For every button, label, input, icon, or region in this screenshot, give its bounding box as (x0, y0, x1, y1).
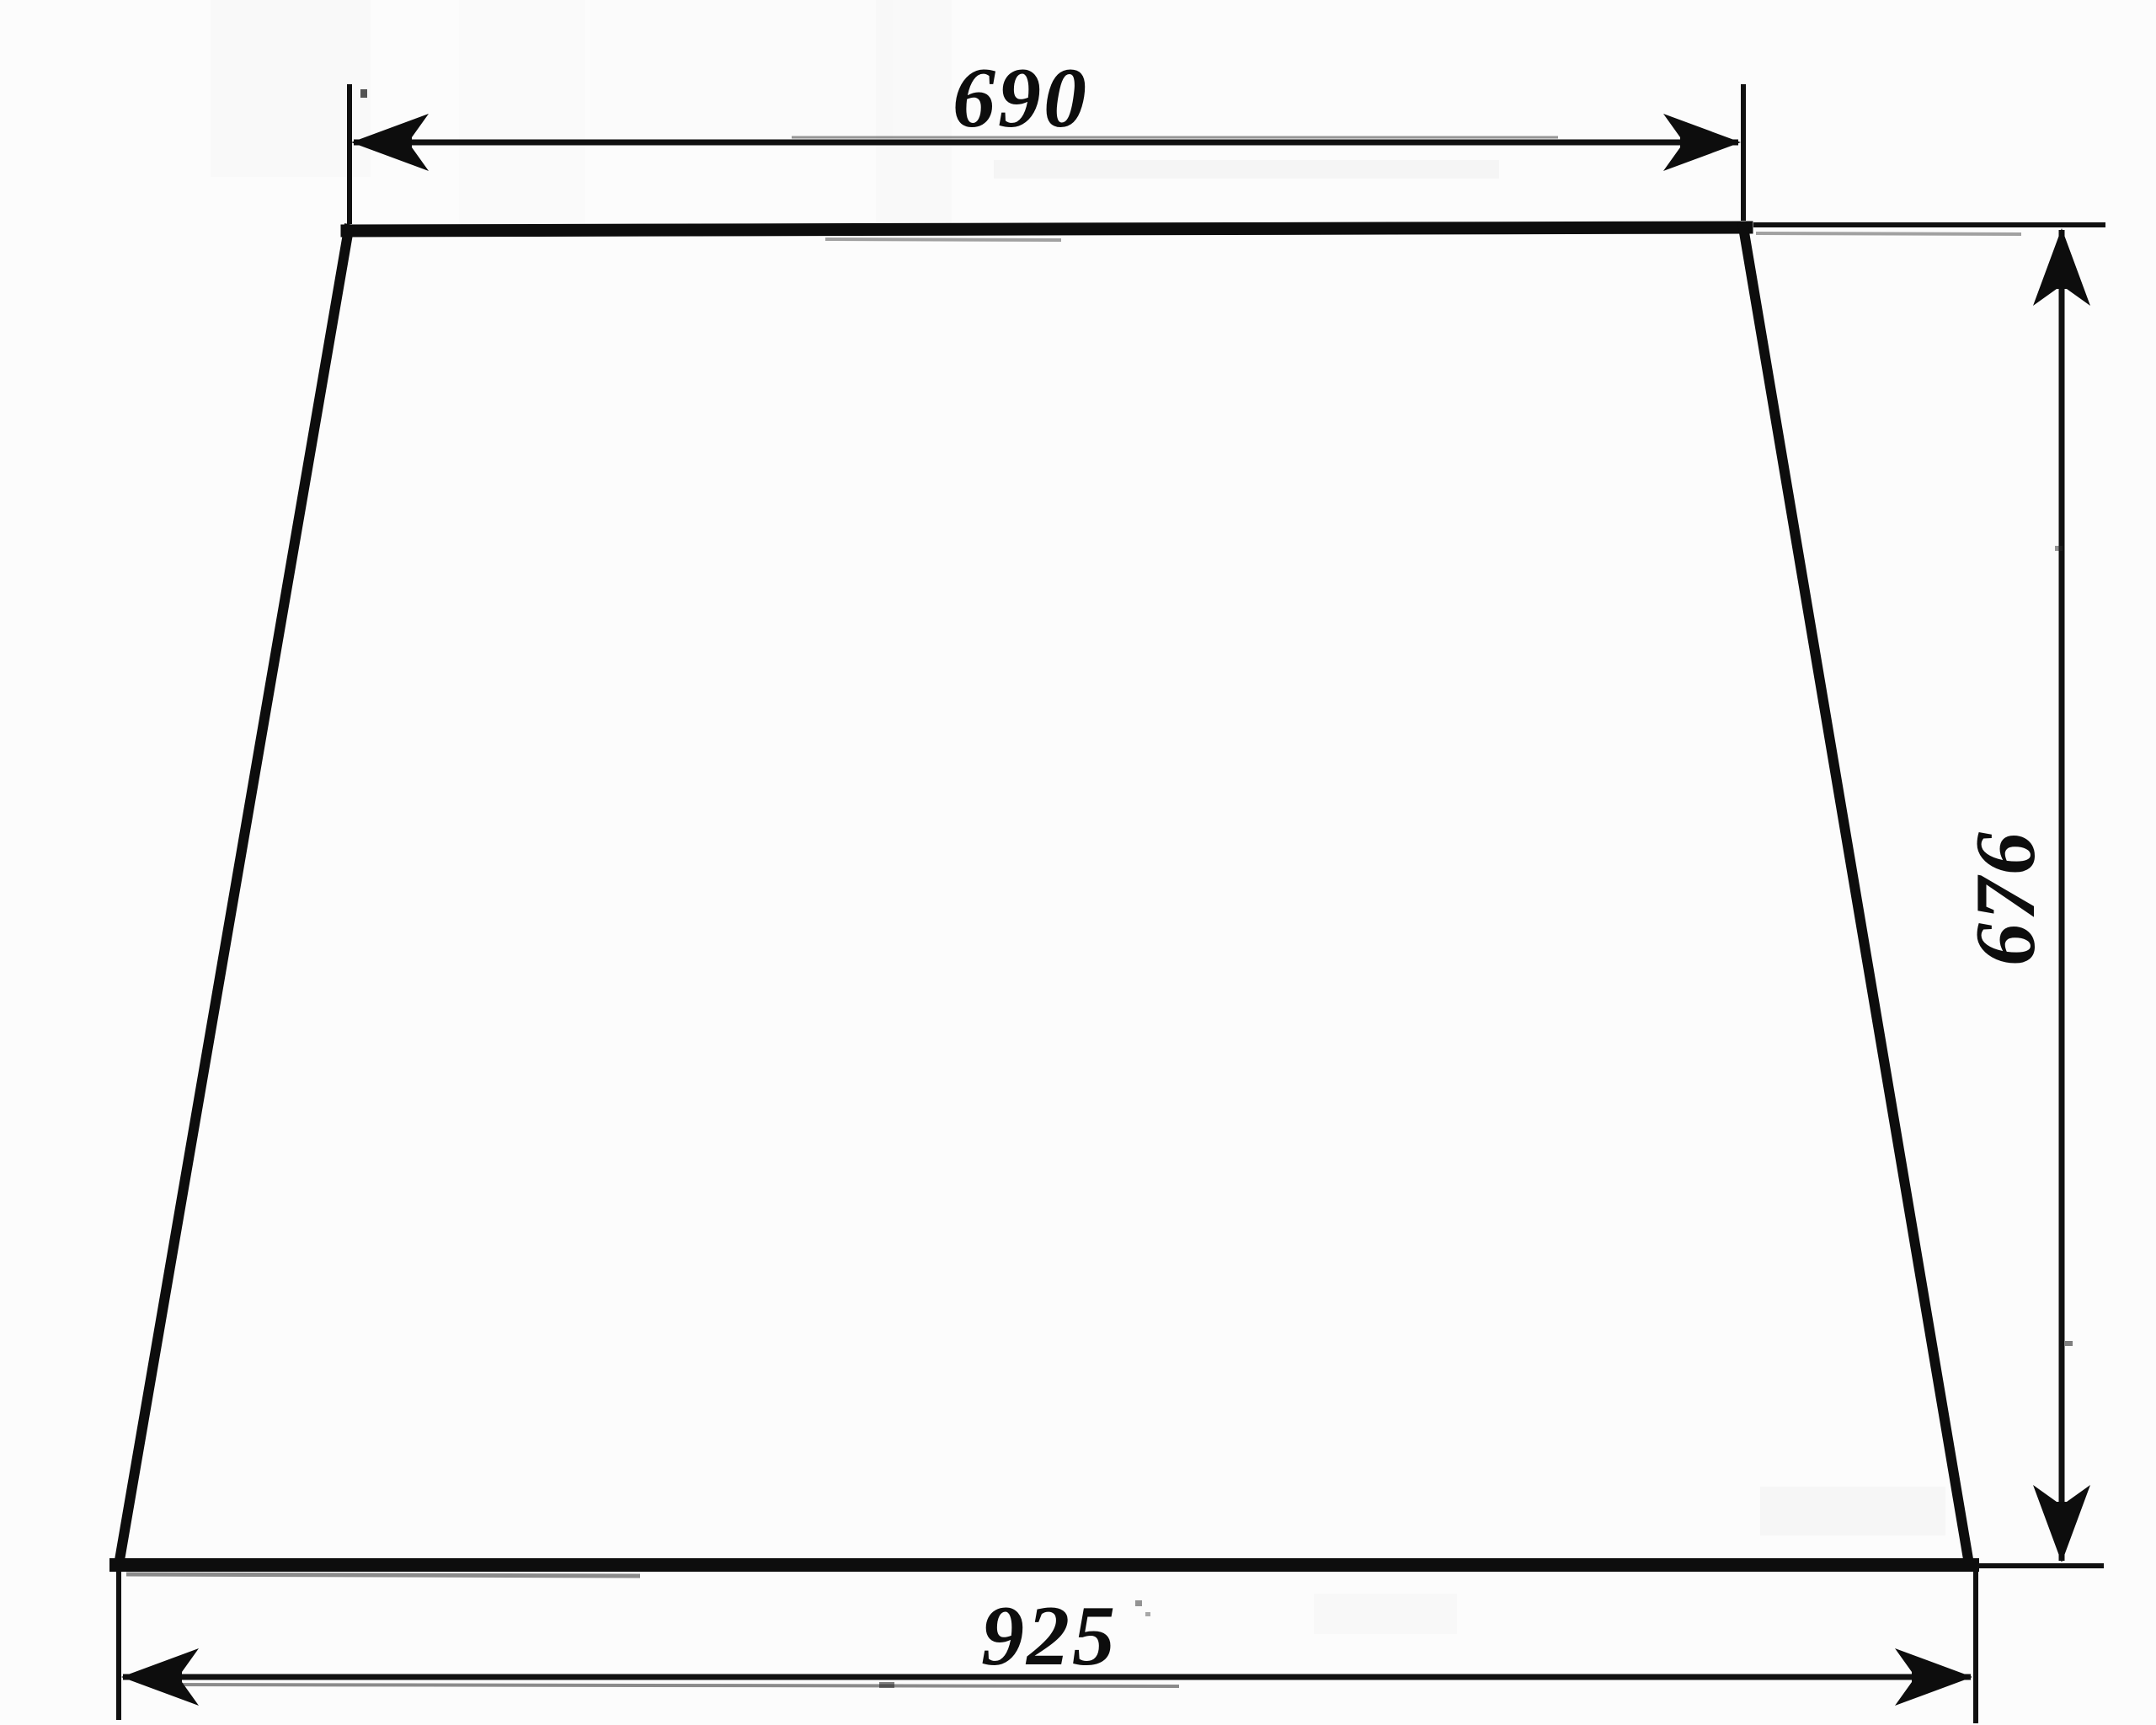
panel-top-edge (347, 227, 1747, 231)
scan-fuzz-dimline-bottom (152, 1685, 1179, 1686)
speckle (879, 1682, 894, 1688)
speckle (1135, 1600, 1142, 1606)
scan-fuzz-top-edge (825, 239, 1061, 240)
dimension-label-top: 690 (953, 51, 1089, 146)
scan-smudge (1314, 1594, 1457, 1634)
scan-smudge (1760, 1487, 1945, 1535)
paper-background (0, 0, 2156, 1725)
scan-band (459, 0, 585, 227)
dimension-label-right: 676 (1958, 830, 2053, 966)
scan-fuzz-extension-top (1756, 233, 2021, 234)
scan-band (590, 0, 893, 147)
dimension-label-bottom: 925 (981, 1589, 1118, 1684)
scan-streak (994, 160, 1499, 179)
scan-fuzz-bottom-edge (126, 1574, 640, 1576)
scan-band (211, 0, 371, 177)
scan-band (876, 0, 952, 236)
drawing-page: 690 676 925 (0, 0, 2156, 1725)
speckle (2055, 546, 2063, 551)
technical-drawing-canvas: 690 676 925 (0, 0, 2156, 1725)
speckle (1145, 1612, 1150, 1616)
speckle (360, 89, 367, 98)
speckle (2065, 1341, 2073, 1346)
